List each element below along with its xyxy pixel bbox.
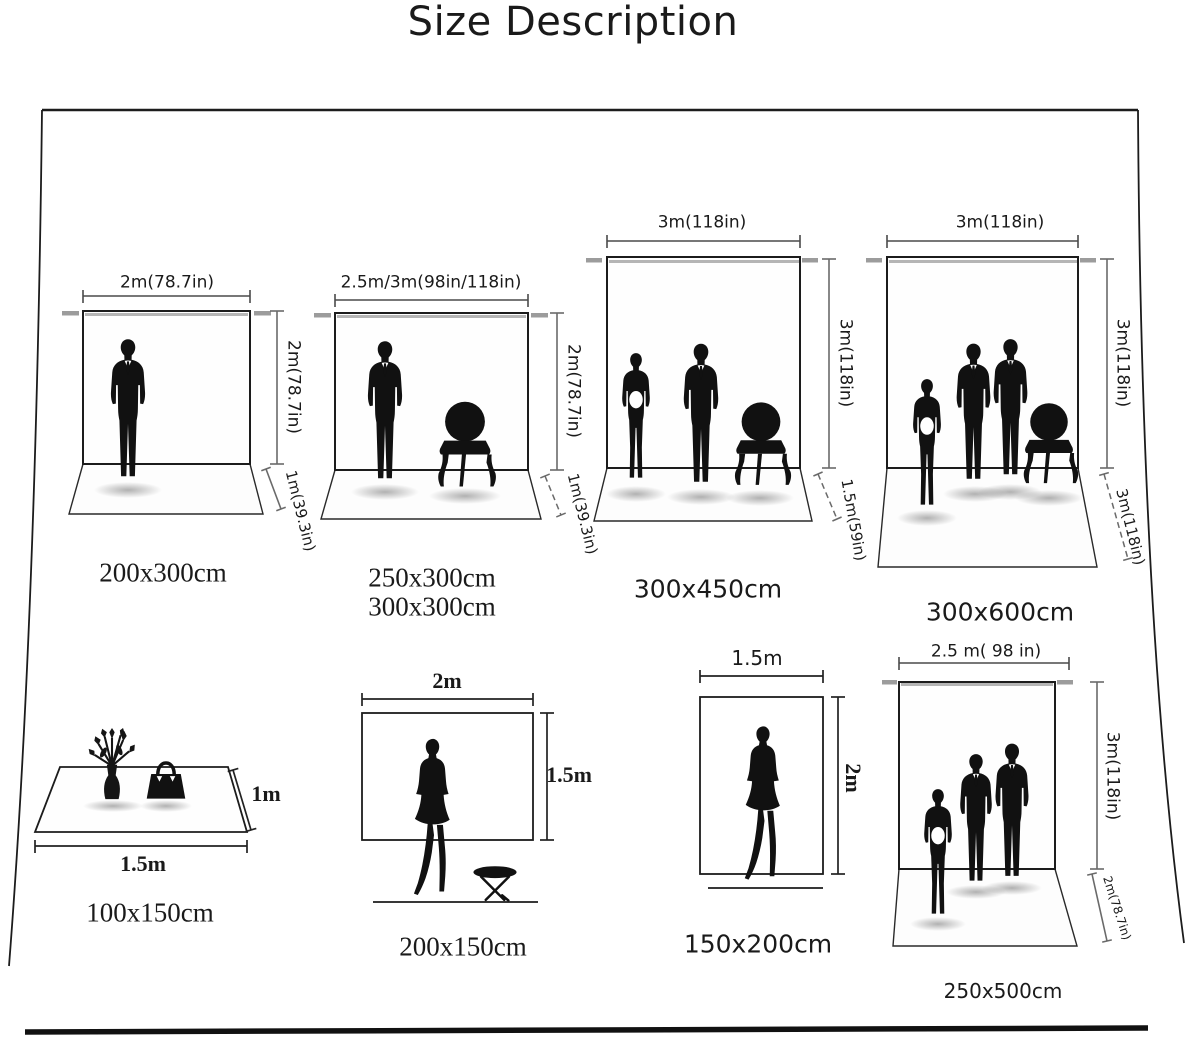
panel-300x450 <box>586 235 842 521</box>
page-title: Size Description <box>408 2 739 42</box>
panel-300x600 <box>866 235 1133 567</box>
p7-height-label: 2m <box>842 763 864 792</box>
stool-silhouette <box>473 866 516 900</box>
p2-caption-line1: 250x300cm <box>368 565 496 592</box>
panel-250x300 <box>314 294 566 519</box>
panel-150x200 <box>700 670 845 888</box>
size-description-infographic: Size Description 2m(78.7in) 2m(78.7in) 1… <box>0 0 1186 1037</box>
panel-200x150 <box>362 693 554 902</box>
p6-height-label: 1.5m <box>546 764 592 786</box>
p5-height-label: 1m <box>251 783 280 805</box>
p4-height-label: 3m(118in) <box>1114 319 1131 408</box>
p8-height-label: 3m(118in) <box>1104 732 1121 821</box>
p3-height-label: 3m(118in) <box>837 319 854 408</box>
p2-width-label: 2.5m/3m(98in/118in) <box>341 275 522 292</box>
panel-250x500 <box>882 657 1112 946</box>
p6-width-label: 2m <box>432 670 461 692</box>
p3-caption: 300x450cm <box>634 577 782 602</box>
p7-caption: 150x200cm <box>684 932 832 957</box>
p5-caption: 100x150cm <box>86 900 214 927</box>
p5-width-label: 1.5m <box>120 853 166 875</box>
p6-caption: 200x150cm <box>399 934 527 961</box>
p1-caption: 200x300cm <box>99 560 227 587</box>
p1-width-label: 2m(78.7in) <box>120 275 214 292</box>
p4-width-label: 3m(118in) <box>956 215 1045 232</box>
p1-height-label: 2m(78.7in) <box>285 340 302 434</box>
p4-caption: 300x600cm <box>926 600 1074 625</box>
p7-width-label: 1.5m <box>731 648 782 668</box>
p2-height-label: 2m(78.7in) <box>565 344 582 438</box>
p2-caption-line2: 300x300cm <box>368 594 496 621</box>
bottom-bar <box>25 1028 1148 1032</box>
panel-100x150 <box>35 728 256 853</box>
p3-width-label: 3m(118in) <box>658 215 747 232</box>
panel-200x300 <box>62 290 286 514</box>
p8-caption: 250x500cm <box>944 981 1063 1001</box>
p8-width-label: 2.5 m( 98 in) <box>931 644 1041 661</box>
